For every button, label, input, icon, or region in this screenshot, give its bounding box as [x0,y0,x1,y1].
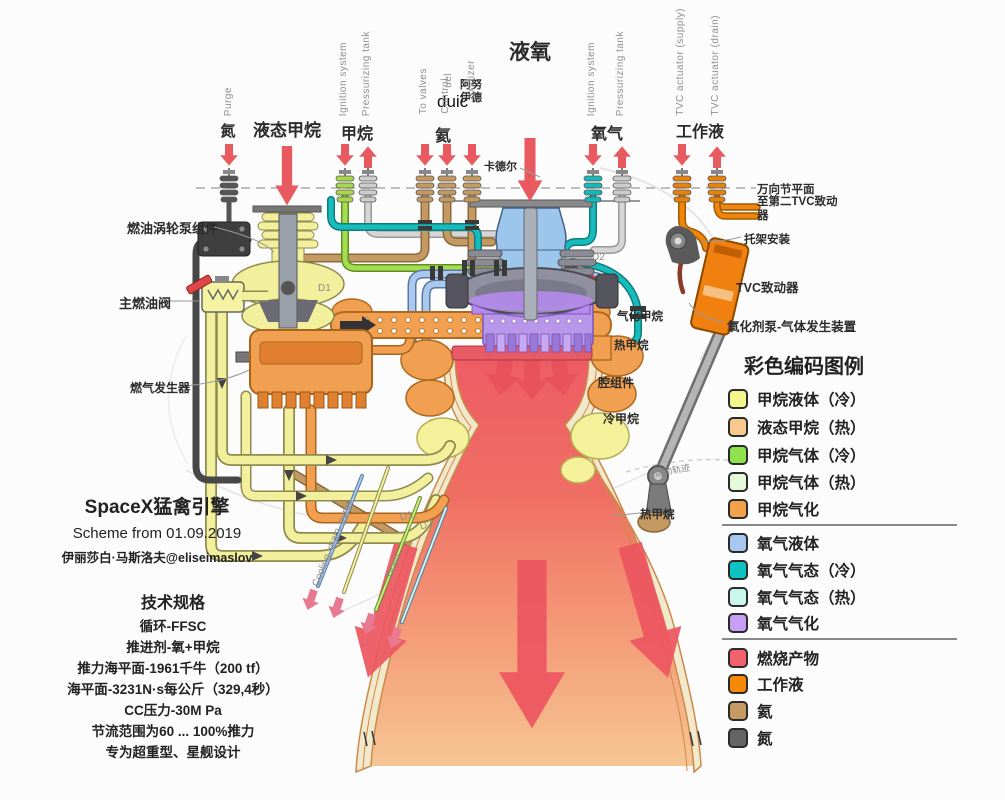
label-purge: Purge [223,87,234,116]
legend-item: 氦 [728,700,773,722]
spec-line: 海平面-3231N·s每公斤（329,4秒） [7,679,339,700]
legend-title: 彩色编码图例 [744,350,864,379]
callout-main-fuel-valve: 主燃油阀 [119,293,171,312]
legend-label: 氧气气态（冷） [757,559,866,581]
label-to-valves: To valves [418,68,429,114]
callout-fuel-turbopump: 燃油涡轮泵组件 [127,218,218,237]
callout-gas-generator: 燃气发生器 [130,379,190,396]
legend-item: 液态甲烷（热） [728,416,866,438]
spec-line: 循环-FFSC [7,616,339,637]
label-liquid-methane: 液态甲烷 [253,116,321,141]
callout-vaporized-methane: 气化甲烷 [617,308,663,324]
callout-bracket-mount: 托架安装 [744,231,790,247]
legend-swatch [728,728,748,748]
spec-title: 技术规格 [7,592,339,616]
legend-item: 甲烷气体（热） [728,471,866,493]
legend-swatch [728,701,748,721]
label-ignition-system-1: Ignition system [338,42,349,116]
callout-kardel: 卡德尔 [484,158,517,174]
spec-line: 节流范围为60 ... 100%推力 [7,721,339,742]
legend-swatch [728,499,748,519]
spec-line: 推力海平面-1961千牛（200 tf） [7,658,339,679]
legend-label: 氧气气态（热） [757,586,866,608]
legend-item: 工作液 [728,673,804,695]
legend-swatch [728,674,748,694]
callout-chamber-assembly: 腔组件 [598,374,634,391]
legend-swatch [728,648,748,668]
engine-title: SpaceX猛禽引擎 [26,492,288,519]
legend-divider [722,524,957,526]
legend-item: 氮 [728,727,773,749]
spec-line: CC压力-30M Pa [7,700,339,721]
label-ignition-system-2: Ignition system [586,42,597,116]
legend-item: 燃烧产物 [728,647,819,669]
callout-hot-methane-upper: 热甲烷 [614,337,649,353]
legend-swatch [728,587,748,607]
label-nitrogen: 氮 [220,120,235,141]
spec-line: 推进剂-氧+甲烷 [7,637,339,658]
legend-swatch [728,445,748,465]
label-uel: uel [443,73,454,88]
legend-label: 甲烷液体（冷） [757,388,866,410]
legend-swatch [728,389,748,409]
legend-label: 甲烷气化 [757,498,819,520]
legend-label: 工作液 [757,673,804,695]
callout-tvc-actuator: TVC致动器 [736,277,799,296]
legend-swatch [728,417,748,437]
legend-label: 氮 [757,727,773,749]
callout-gimbal-plane: 万向节平面 [757,181,815,197]
legend-item: 甲烷气化 [728,498,819,520]
title-block: SpaceX猛禽引擎 Scheme from 01.09.2019 伊丽莎白·马… [26,492,288,566]
legend-item: 氧气气态（热） [728,586,866,608]
callout-oxidizer-pump-gg: 氧化剂泵-气体发生装置 [727,316,856,335]
spec-block: 技术规格 循环-FFSC 推进剂-氧+甲烷 推力海平面-1961千牛（200 t… [7,592,339,763]
legend-swatch [728,533,748,553]
callout-cold-methane: 冷甲烷 [603,410,639,427]
label-oxygen: 氧气 [591,120,623,144]
legend-item: 氧气液体 [728,532,819,554]
legend-item: 氧气气化 [728,612,819,634]
author-credit: 伊丽莎白·马斯洛夫@eliseimaslov [26,547,288,566]
legend-swatch [728,560,748,580]
label-tvc-drain: TVC actuator (drain) [710,15,721,116]
legend-label: 甲烷气体（冷） [757,444,866,466]
label-helium: 氦 [435,122,451,146]
legend-label: 氧气气化 [757,612,819,634]
callout-hot-methane-lower: 热甲烷 [640,506,675,522]
label-pressurizing-tank-1: Pressurizing tank [361,31,372,116]
callout-d1-top: D1 [318,283,331,294]
legend-item: 甲烷液体（冷） [728,388,866,410]
legend-label: 燃烧产物 [757,647,819,669]
legend-swatch [728,613,748,633]
label-pressurizing-tank-2: Pressurizing tank [615,31,626,116]
label-oxidizer: oxidizer [466,60,477,98]
spec-line: 专为超重型、星舰设计 [7,742,339,763]
label-methane: 甲烷 [341,120,373,144]
scheme-date: Scheme from 01.09.2019 [26,525,288,542]
raptor-engine-diagram: 氮 液态甲烷 甲烷 氦 液氧 氧气 工作液 duic 阿努伊德 Purge Ig… [0,0,1005,800]
legend-label: 氧气液体 [757,532,819,554]
legend-label: 氦 [757,700,773,722]
callout-to-second-tvc: 至第二TVC致动器 [757,196,843,224]
legend-item: 甲烷气体（冷） [728,444,866,466]
legend-label: 液态甲烷（热） [757,416,866,438]
label-tvc-supply: TVC actuator (supply) [675,8,686,116]
legend-item: 氧气气态（冷） [728,559,866,581]
legend-swatch [728,472,748,492]
label-working-fluid: 工作液 [676,118,724,142]
legend-divider [722,638,957,640]
label-lox: 液氧 [509,36,551,66]
legend-label: 甲烷气体（热） [757,471,866,493]
callout-d2-top: D2 [592,252,605,263]
